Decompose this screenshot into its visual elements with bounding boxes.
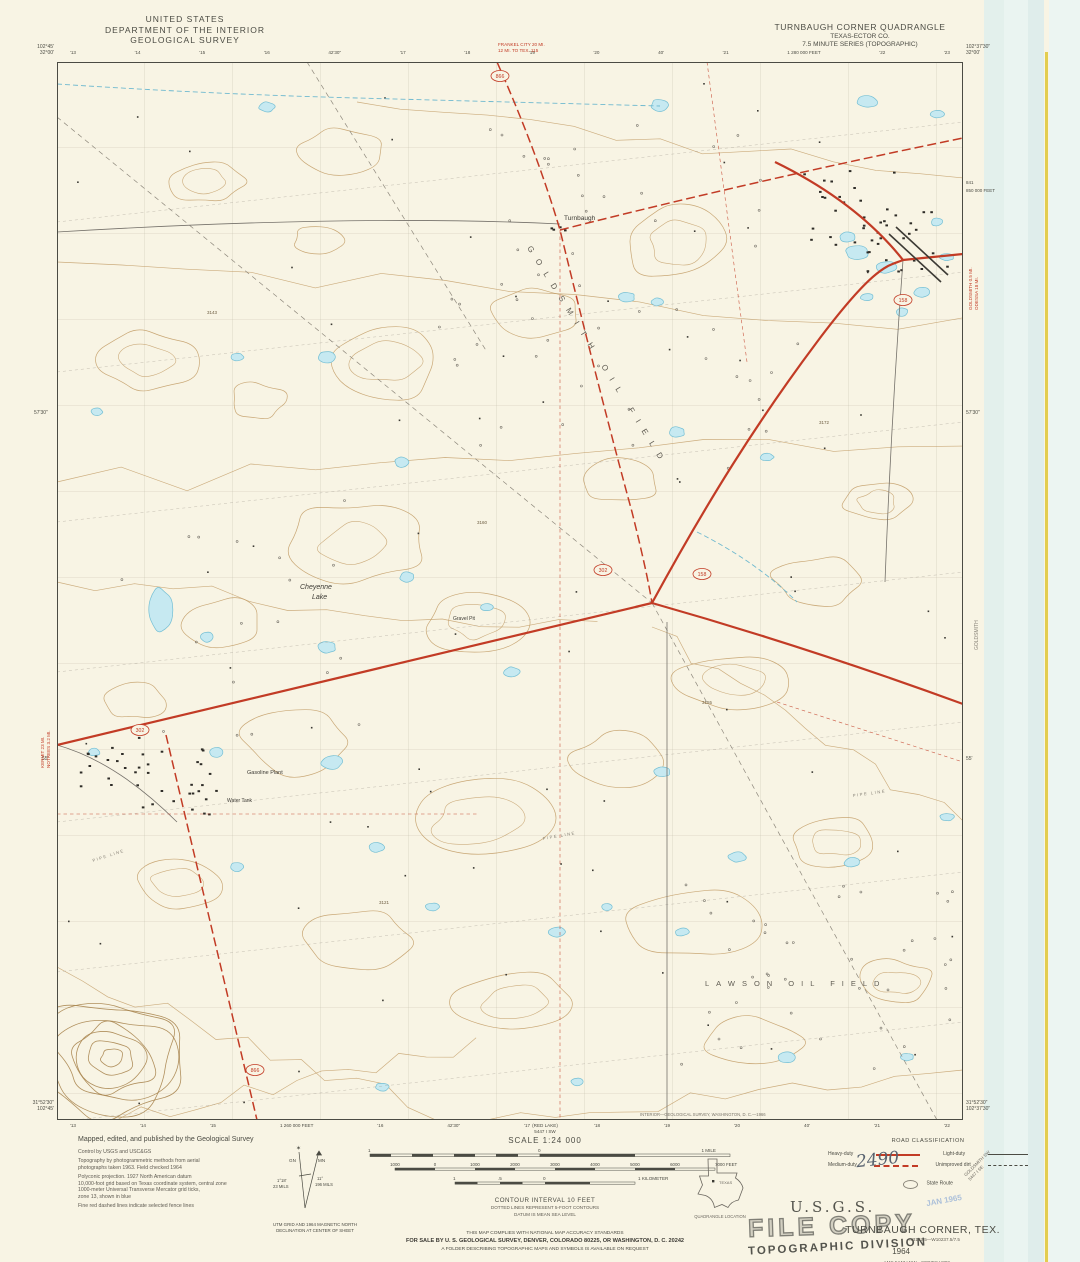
scale-tick-label: 0 — [538, 1148, 541, 1153]
lake — [571, 1078, 583, 1086]
mn-angle: 11° — [317, 1176, 323, 1181]
structure-dot — [473, 867, 475, 869]
grid-tick: '19 — [664, 1123, 670, 1128]
grid-tick: 1 280 000 FEET — [787, 50, 820, 55]
building — [885, 224, 888, 226]
building — [138, 767, 141, 769]
structure-dot — [860, 414, 862, 416]
building — [885, 259, 888, 261]
grid-tick: '17 — [400, 50, 406, 55]
right-destination-note: GOLDSMITH 0.5 MI. ODESSA 18 MI. — [968, 310, 1011, 322]
building — [902, 237, 905, 239]
building — [854, 241, 857, 243]
agency-header: UNITED STATES DEPARTMENT OF THE INTERIOR… — [60, 14, 310, 46]
label-cheyenne-lake-2: Lake — [312, 594, 327, 601]
scale-tick-label: 1000 — [470, 1162, 480, 1167]
adjacent-quad-ref: 5447 I SW — [470, 1129, 620, 1135]
lake — [930, 110, 944, 117]
structure-dot — [230, 667, 232, 669]
structure-dot — [724, 162, 726, 164]
grid-tick: '22 — [944, 1123, 950, 1128]
corner-bottom-right: 31°52'30" 102°37'30" — [966, 1100, 1018, 1113]
building — [877, 243, 880, 245]
contour-datum-note: DATUM IS MEAN SEA LEVEL — [400, 1212, 690, 1219]
scale-tick-label: 2000 — [510, 1162, 520, 1167]
quad-subtitle1: TEXAS-ECTOR CO. — [740, 33, 980, 41]
building — [161, 751, 164, 753]
building — [201, 784, 204, 786]
building — [883, 220, 886, 222]
left-edge-lat-upper: 57'30" — [34, 410, 48, 416]
building — [895, 214, 898, 216]
quad-subtitle2: 7.5 MINUTE SERIES (TOPOGRAPHIC) — [740, 41, 980, 49]
scale-tick-label: 1 KILOMETER — [638, 1176, 669, 1181]
structure-dot — [470, 236, 472, 238]
building — [853, 187, 856, 189]
building — [209, 773, 212, 775]
label-turnbaugh: Turnbaugh — [564, 215, 596, 222]
route-shield-158: 158 — [698, 572, 707, 578]
structure-dot — [311, 727, 313, 729]
building — [867, 251, 870, 253]
structure-dot — [694, 230, 696, 232]
destination-line: 12 MI. TO TEX. 115 — [498, 48, 545, 54]
structure-dot — [726, 709, 728, 711]
building — [80, 785, 83, 787]
structure-dot — [515, 296, 517, 298]
label-gravel-pit: Gravel Pit — [453, 616, 476, 622]
structure-dot — [207, 571, 209, 573]
scale-tick-label: .5 — [498, 1176, 502, 1181]
structure-dot — [576, 591, 578, 593]
corner-top-right: 102°37'30" 32°00' — [966, 44, 1016, 57]
grid-tick: '14 — [135, 50, 141, 55]
building — [923, 211, 926, 213]
lake — [210, 747, 223, 757]
right-inside-grid-feet: 850 000 FEET — [966, 188, 1000, 194]
building — [205, 798, 208, 800]
building — [886, 208, 889, 210]
building — [871, 239, 874, 241]
sheet-coords: N3152.5—W10237.5/7.5 — [760, 1237, 960, 1243]
grid-north-label: GN — [289, 1158, 296, 1163]
road-classification-title: ROAD CLASSIFICATION — [828, 1138, 1028, 1145]
building — [107, 778, 110, 780]
lake — [400, 572, 414, 582]
corner-bottom-left: 31°52'30" 102°45' — [8, 1100, 54, 1113]
building — [823, 180, 826, 182]
structure-dot — [703, 83, 705, 85]
corner-top-left: 102°45' 32°00' — [12, 44, 54, 57]
legend-heavy-duty: Heavy-duty — [828, 1151, 853, 1157]
lake — [900, 1054, 913, 1061]
structure-dot — [243, 1102, 245, 1104]
scan-stripe — [1004, 0, 1028, 1262]
structure-dot — [367, 826, 369, 828]
destination-line: ODESSA 18 MI. — [974, 267, 980, 310]
legend-state-route: State Route — [927, 1181, 953, 1187]
scan-stripe — [1028, 0, 1044, 1262]
building — [838, 196, 841, 198]
structure-dot — [560, 863, 562, 865]
structure-dot — [137, 116, 139, 118]
structure-dot — [812, 771, 814, 773]
building — [821, 196, 824, 198]
building — [215, 790, 218, 792]
right-inside-grid-number: 841 — [966, 180, 974, 186]
grid-tick: '14 — [140, 1123, 146, 1128]
legend-light-duty: Light-duty — [943, 1151, 965, 1157]
structure-dot — [100, 943, 102, 945]
grid-tick: 42'30" — [447, 1123, 460, 1128]
structure-dot — [607, 300, 609, 302]
kilometer-bar: 1 .5 0 1 KILOMETER — [453, 1176, 669, 1184]
structure-dot — [867, 272, 869, 274]
mn-mils: 196 MILS — [315, 1182, 333, 1187]
structure-dot — [543, 401, 545, 403]
contour-note: CONTOUR INTERVAL 10 FEET DOTTED LINES RE… — [400, 1196, 690, 1219]
scale-tick-label: 1 — [368, 1148, 371, 1153]
gn-mils: 23 MILS — [273, 1184, 289, 1189]
structure-dot — [952, 936, 954, 938]
grid-tick: 42'30" — [328, 50, 341, 55]
feet-bar: 100001000200030004000500060007000 FEET — [390, 1162, 737, 1170]
scale-tick-label: 5000 — [630, 1162, 640, 1167]
right-edge-lat-lower: 55' — [966, 756, 973, 762]
structure-dot — [794, 591, 796, 593]
coord-lat: 32°00' — [12, 50, 54, 56]
building — [810, 239, 813, 241]
structure-dot — [662, 972, 664, 974]
building — [200, 763, 203, 765]
grid-tick: '22 — [879, 50, 885, 55]
building — [859, 200, 862, 202]
structure-dot — [727, 901, 729, 903]
building — [849, 170, 852, 172]
structure-dot — [405, 875, 407, 877]
survey-grid — [57, 62, 963, 1120]
lake — [669, 427, 684, 437]
building — [946, 266, 949, 268]
coord-lon: 102°37'30" — [966, 1106, 1018, 1112]
quad-title-block: TURNBAUGH CORNER QUADRANGLE TEXAS-ECTOR … — [740, 22, 980, 49]
building — [893, 172, 896, 174]
scale-tick-label: 4000 — [590, 1162, 600, 1167]
lake — [618, 292, 634, 301]
legend-unimproved: Unimproved dirt — [935, 1162, 970, 1168]
structure-dot — [189, 151, 191, 153]
structure-dot — [771, 1048, 773, 1050]
structure-dot — [669, 349, 671, 351]
spot-elevation: 3121 — [379, 900, 390, 905]
lake — [231, 353, 244, 360]
destination-line: NOTREES 3.2 MI. — [46, 730, 52, 768]
print-note: INTERIOR—GEOLOGICAL SURVEY, WASHINGTON, … — [640, 1112, 766, 1117]
label-water-tank: Water Tank — [227, 798, 253, 804]
scan-stripe — [1049, 0, 1080, 1262]
grid-tick: '20 — [734, 1123, 740, 1128]
scale-tick-label: 6000 — [670, 1162, 680, 1167]
structure-dot — [914, 1054, 916, 1056]
structure-dot — [707, 1024, 709, 1026]
magnetic-north-label: MN — [318, 1158, 325, 1163]
state-route-oval — [903, 1180, 918, 1189]
structure-dot — [391, 139, 393, 141]
compliance-line: THIS MAP COMPLIES WITH NATIONAL MAP ACCU… — [330, 1230, 760, 1237]
folder-line: A FOLDER DESCRIBING TOPOGRAPHIC MAPS AND… — [330, 1246, 760, 1253]
building — [824, 197, 827, 199]
building — [829, 236, 832, 238]
topo-map: 302 158 302 866 866 158 Turnbaugh Cheyen… — [57, 62, 963, 1120]
building — [134, 771, 137, 773]
structure-dot — [747, 227, 749, 229]
building — [95, 755, 98, 757]
building — [190, 784, 193, 786]
contour-dotted-note: DOTTED LINES REPRESENT 5-FOOT CONTOURS — [400, 1205, 690, 1212]
texas-inset: TEXAS — [688, 1158, 752, 1214]
declination-diagram: ✶ GN MN 1°18' 23 MILS 11° 196 MILS — [255, 1142, 365, 1220]
building — [908, 233, 911, 235]
building — [136, 784, 139, 786]
lake — [840, 232, 855, 242]
top-destination-note: FRANKEL CITY 20 MI. 12 MI. TO TEX. 115 — [498, 42, 545, 53]
sheet-name: TURNBAUGH CORNER, TEX. — [760, 1224, 1000, 1237]
agency-line1: UNITED STATES — [60, 14, 310, 25]
structure-dot — [291, 267, 293, 269]
grid-tick: '16 — [377, 1123, 383, 1128]
label-lawson-oil-field: LAWSON OIL FIELD — [705, 979, 886, 988]
structure-dot — [592, 870, 594, 872]
building — [188, 793, 191, 795]
structure-dot — [479, 418, 481, 420]
gn-angle: 1°18' — [277, 1178, 287, 1183]
unimproved-sample — [988, 1165, 1028, 1168]
structure-dot — [762, 410, 764, 412]
structure-dot — [399, 420, 401, 422]
structure-dot — [679, 481, 681, 483]
scan-yellow-line — [1045, 52, 1048, 1262]
route-shield-302: 302 — [136, 728, 145, 734]
spot-elevation: 3155 — [702, 700, 713, 705]
quadrangle-location-dot — [712, 1180, 714, 1182]
building — [830, 181, 833, 183]
structure-dot — [138, 1103, 140, 1105]
grid-tick: '20 — [593, 50, 599, 55]
mile-bar: 1 0 1 MILE — [368, 1148, 730, 1157]
building — [932, 252, 935, 254]
structure-dot — [687, 336, 689, 338]
building — [138, 737, 141, 739]
building — [161, 790, 164, 792]
grid-tick: 40' — [804, 1123, 810, 1128]
true-north-star: ✶ — [296, 1145, 301, 1152]
lake — [846, 246, 868, 260]
structure-dot — [739, 360, 741, 362]
building — [80, 772, 83, 774]
spot-elevation: 3160 — [477, 520, 488, 525]
lake — [318, 352, 335, 363]
structure-dot — [568, 651, 570, 653]
building — [819, 191, 822, 193]
building — [201, 748, 204, 750]
scale-tick-label: 0 — [543, 1176, 546, 1181]
lake — [860, 294, 873, 301]
building — [564, 229, 567, 231]
scale-tick-label: 1 MILE — [701, 1148, 716, 1153]
structure-dot — [546, 789, 548, 791]
grid-tick: '21 — [874, 1123, 880, 1128]
legend-medium-duty: Medium-duty — [828, 1162, 857, 1168]
route-shield-158: 158 — [899, 298, 908, 304]
structure-dot — [897, 851, 899, 853]
grid-tick: '16 — [264, 50, 270, 55]
scale-tick-label: 3000 — [550, 1162, 560, 1167]
contour-interval: CONTOUR INTERVAL 10 FEET — [400, 1196, 690, 1205]
scale-tick-label: 1000 — [390, 1162, 400, 1167]
grid-tick: '15 — [210, 1123, 216, 1128]
coord-lon: 102°45' — [8, 1106, 54, 1112]
quad-title: TURNBAUGH CORNER QUADRANGLE — [740, 22, 980, 33]
route-shield-302: 302 — [599, 568, 608, 574]
scale-bars: 1 0 1 MILE 10000100020003000400050006000… — [360, 1148, 740, 1194]
building — [142, 806, 145, 808]
adjacent-quad-name: GOLDSMITH — [974, 620, 980, 650]
building — [110, 784, 113, 786]
structure-dot — [330, 821, 332, 823]
structure-dot — [298, 907, 300, 909]
structure-dot — [757, 110, 759, 112]
building — [897, 271, 900, 273]
building — [915, 229, 918, 231]
route-shield-866: 866 — [496, 74, 505, 80]
building — [111, 747, 114, 749]
lake — [896, 308, 907, 316]
structure-dot — [790, 576, 792, 578]
building — [196, 761, 199, 763]
building — [910, 222, 913, 224]
structure-dot — [677, 478, 679, 480]
scale-tick-label: 1 — [453, 1176, 456, 1181]
building — [147, 763, 150, 765]
building — [142, 753, 145, 755]
grid-tick: 1 260 000 FEET — [280, 1123, 313, 1128]
grid-tick: '18 — [464, 50, 470, 55]
destination-line: FRANKEL CITY 20 MI. — [498, 42, 545, 48]
grid-tick: '13 — [70, 1123, 76, 1128]
building — [107, 759, 110, 761]
structure-dot — [505, 974, 507, 976]
building — [803, 173, 806, 175]
sale-line: FOR SALE BY U. S. GEOLOGICAL SURVEY, DEN… — [330, 1237, 760, 1245]
building — [921, 268, 924, 270]
spot-elevation: 3172 — [819, 420, 830, 425]
lake — [91, 408, 103, 416]
grid-tick: '21 — [723, 50, 729, 55]
structure-dot — [298, 1071, 300, 1073]
building — [116, 760, 119, 762]
sheet-year: 1964 — [760, 1247, 910, 1257]
building — [879, 222, 882, 224]
sheet-title-block: TURNBAUGH CORNER, TEX. N3152.5—W10237.5/… — [760, 1224, 1000, 1262]
lake — [914, 287, 930, 297]
scale-tick-label: 0 — [434, 1162, 437, 1167]
building — [192, 793, 195, 795]
building — [812, 228, 815, 230]
structure-dot — [944, 637, 946, 639]
grid-tick: '13 — [70, 50, 76, 55]
structure-dot — [418, 533, 420, 535]
building — [862, 227, 865, 229]
coord-lat: 32°00' — [966, 50, 1016, 56]
building — [930, 211, 933, 213]
building — [835, 244, 838, 246]
spot-elevation: 3143 — [207, 310, 218, 315]
building — [151, 803, 154, 805]
scale-label: SCALE 1:24 000 — [430, 1136, 660, 1146]
structure-dot — [819, 141, 821, 143]
structure-dot — [503, 355, 505, 357]
structure-dot — [382, 1000, 384, 1002]
building — [147, 772, 150, 774]
agency-line2: DEPARTMENT OF THE INTERIOR — [60, 25, 310, 36]
texas-label: TEXAS — [719, 1180, 732, 1185]
structure-dot — [455, 633, 457, 635]
building — [89, 765, 92, 767]
structure-dot — [86, 743, 88, 745]
structure-dot — [430, 791, 432, 793]
structure-dot — [604, 800, 606, 802]
grid-tick: '15 — [199, 50, 205, 55]
label-cheyenne-lake-1: Cheyenne — [300, 584, 332, 591]
adjacent-quad-bottom: (RED LAKE) 5447 I SW — [470, 1123, 620, 1134]
structure-dot — [77, 181, 79, 183]
date-stamp: JAN 1965 — [925, 1193, 962, 1208]
lake — [778, 1052, 795, 1063]
compliance-block: THIS MAP COMPLIES WITH NATIONAL MAP ACCU… — [330, 1230, 760, 1253]
route-shield-866: 866 — [251, 1068, 260, 1074]
building — [172, 800, 175, 802]
grid-tick: 40' — [658, 50, 664, 55]
building — [553, 229, 556, 231]
building — [121, 753, 124, 755]
building — [124, 767, 127, 769]
right-edge-lat-upper: 57'30" — [966, 410, 980, 416]
lake — [481, 604, 494, 611]
building — [198, 790, 201, 792]
label-gasoline-plant: Gasoline Plant — [247, 770, 283, 776]
building — [834, 210, 837, 212]
map-sheet: UNITED STATES DEPARTMENT OF THE INTERIOR… — [0, 0, 1080, 1262]
structure-dot — [418, 768, 420, 770]
structure-dot — [68, 921, 70, 923]
building — [863, 225, 866, 227]
right-margin-adjacent-quad: GOLDSMITH — [974, 650, 1004, 656]
structure-dot — [928, 611, 930, 613]
lake — [602, 904, 612, 911]
building — [87, 753, 90, 755]
building — [191, 809, 194, 811]
structure-dot — [253, 545, 255, 547]
structure-dot — [331, 324, 333, 326]
agency-line3: GEOLOGICAL SURVEY — [60, 35, 310, 46]
structure-dot — [600, 931, 602, 933]
structure-dot — [824, 448, 826, 450]
grid-tick: '23 — [944, 50, 950, 55]
